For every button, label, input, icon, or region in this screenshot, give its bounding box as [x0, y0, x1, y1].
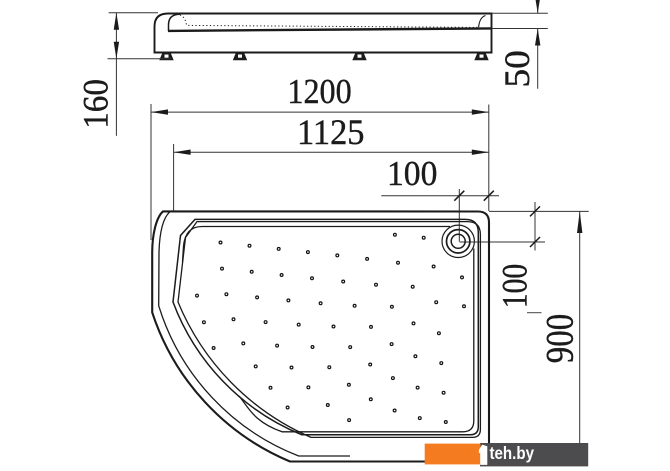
svg-text:160: 160: [76, 79, 116, 129]
svg-text:100: 100: [387, 154, 437, 193]
svg-text:teh.by: teh.by: [490, 443, 535, 463]
svg-text:900: 900: [539, 314, 582, 364]
svg-text:100: 100: [494, 264, 534, 309]
svg-text:50: 50: [497, 50, 537, 87]
svg-text:1125: 1125: [297, 112, 365, 152]
svg-text:1200: 1200: [287, 72, 351, 111]
